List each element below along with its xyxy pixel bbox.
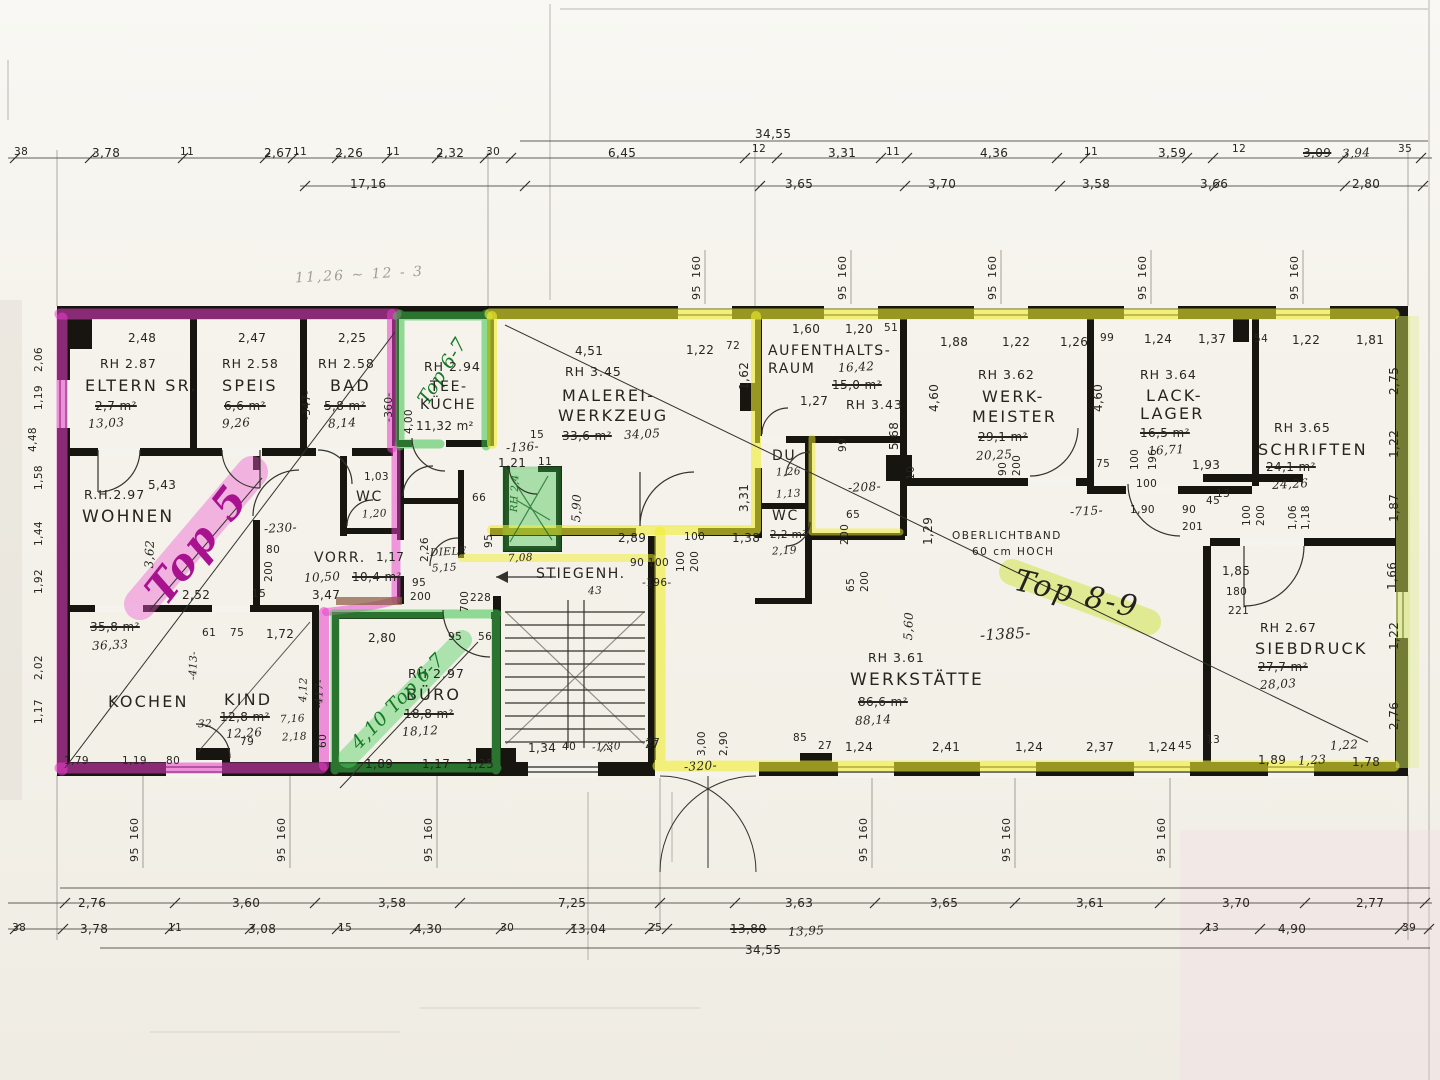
dim-label: 1,18	[1301, 505, 1312, 530]
dim-label: 1,17	[34, 699, 45, 724]
room-area-struck: 27,7 m²	[1258, 661, 1308, 673]
dim-label: 1,29	[922, 517, 934, 545]
dim-label: 1,26	[1060, 336, 1088, 348]
room-name: WC	[356, 490, 383, 504]
dim-label: 51	[884, 323, 898, 334]
window-dim-pair: 95160	[422, 818, 435, 863]
dim-label: 17,16	[350, 178, 386, 190]
dim-label: 11	[386, 147, 400, 158]
dim-label: 11	[886, 147, 900, 158]
dim-label: 4,60	[928, 384, 940, 412]
room-name: TEE-	[430, 380, 468, 394]
dim-label: 72	[726, 341, 740, 352]
dim-label: 2,02	[34, 655, 45, 680]
room-area-struck: 15,0 m²	[832, 379, 882, 391]
dim-label: 12	[1232, 144, 1246, 155]
dim-label: 3,65	[930, 897, 958, 909]
dim-label: 1,22	[686, 344, 714, 356]
room-area: 11,32 m²	[416, 420, 474, 432]
dim-label: 200	[860, 571, 871, 592]
dim-label: 90 100	[630, 558, 669, 569]
dim-label: 3,31	[738, 484, 750, 512]
dim-label: 2,41	[932, 741, 960, 753]
dim-label: 100	[676, 551, 687, 572]
dim-label: 75	[230, 628, 244, 639]
room-name: ELTERN SR.	[85, 378, 198, 394]
dim-label: 4,00	[404, 409, 415, 434]
dim-label: 38	[14, 147, 28, 158]
window-dim-pair: 95160	[690, 256, 703, 301]
dim-label: 39	[1402, 923, 1416, 934]
room-area-handwritten: 10,50	[304, 570, 341, 584]
room-area-struck: 10,4 m²	[352, 571, 402, 583]
dim-label: 1,19	[122, 756, 147, 767]
dim-label: 1,24	[845, 741, 873, 753]
window-dim-pair: 95160	[1288, 256, 1301, 301]
dim-label: 3,70	[1222, 897, 1250, 909]
dim-label: 1,06	[1288, 505, 1299, 530]
dim-label: 2,89	[618, 532, 646, 544]
dim-label: 11	[1084, 147, 1098, 158]
dim-label: 2,37	[1086, 741, 1114, 753]
dim-label: 1,79	[64, 756, 89, 767]
floor-plan-page: 34,55 38 3,78 11 2,67 11 2,26 11 2,32 30…	[0, 0, 1440, 1080]
dim-label: 5,68	[888, 422, 900, 450]
room-area-struck: 2,7 m²	[95, 400, 137, 412]
dim-label: 5,90	[570, 494, 583, 523]
dim-label: 1,58	[34, 465, 45, 490]
dim-label: 40	[562, 742, 576, 753]
dim-label: 99	[838, 438, 849, 452]
dim-label: 3,65	[785, 178, 813, 190]
dim-label-handwritten: 1,22	[1330, 738, 1359, 751]
room-height: RH 3.45	[565, 366, 622, 379]
room-name: WERK-	[982, 389, 1045, 405]
window-dim-pair: 95160	[1000, 818, 1013, 863]
window-dim-pair: 95160	[986, 256, 999, 301]
dim-label: 1,21	[498, 457, 526, 469]
room-area-struck: 24,1 m²	[1266, 461, 1316, 473]
room-height: RH 2.87	[100, 358, 157, 371]
dim-label-handwritten: -1385-	[980, 626, 1031, 644]
room-area-handwritten: 13,03	[88, 416, 125, 430]
dim-label: 30	[486, 147, 500, 158]
room-height: RH 2.58	[222, 358, 279, 371]
dim-label: 38	[12, 923, 26, 934]
scan-smudge	[1180, 830, 1440, 1080]
dim-label: 2,80	[368, 632, 396, 644]
dim-label: 3,59	[1158, 147, 1186, 159]
dim-label: 1,24	[1148, 741, 1176, 753]
room-name-handwritten: DIELE	[430, 546, 467, 558]
dim-label: 27	[646, 738, 660, 749]
dim-label: 1,22	[1292, 334, 1320, 346]
dim-label: 1,34	[528, 742, 556, 754]
dim-label-struck: 13,80	[730, 923, 766, 935]
dim-label: 6,45	[608, 147, 636, 159]
dim-label: 3,08	[248, 923, 276, 935]
room-height: R.H.2.97	[84, 489, 145, 502]
room-area-handwritten: 28,03	[1260, 677, 1297, 691]
room-area-handwritten: 1,26	[776, 466, 801, 478]
dim-label: 75	[1096, 459, 1110, 470]
dim-label: 2,90	[719, 731, 730, 756]
dim-label: 7,25	[558, 897, 586, 909]
dim-label: 3,00	[697, 731, 708, 756]
dim-label: 1,17	[376, 551, 404, 563]
dim-label: 1,24	[1015, 741, 1043, 753]
room-area-handwritten: 36,33	[92, 638, 129, 652]
dim-label: 11	[293, 147, 307, 158]
window-dim-pair: 95160	[836, 256, 849, 301]
room-area-struck: 29,1 m²	[978, 431, 1028, 443]
dim-label: 25	[648, 923, 662, 934]
room-area-handwritten: 20,25	[976, 448, 1013, 462]
dim-label: 200	[1012, 455, 1023, 476]
dim-label: 13	[1216, 489, 1230, 500]
dim-label: 1,03	[364, 472, 389, 483]
dim-overall-top: 34,55	[755, 128, 791, 140]
dim-label: 3,58	[378, 897, 406, 909]
dim-label: 1,38	[732, 532, 760, 544]
dim-label: 100	[1136, 479, 1157, 490]
dim-label: 1,20	[845, 323, 873, 335]
dim-label: -417-	[314, 679, 326, 708]
room-name: RAUM	[768, 362, 815, 376]
dim-label: 2,76	[1388, 702, 1400, 730]
dim-label: 100	[1130, 449, 1141, 470]
dim-label: 1,22	[1388, 430, 1400, 458]
dim-label-handwritten: 2,18	[282, 731, 307, 743]
dim-label: 3,63	[785, 897, 813, 909]
closet-room-height: RH 2,4	[510, 474, 521, 512]
dim-label: 4,36	[980, 147, 1008, 159]
dim-label-handwritten: 1,20	[362, 508, 387, 520]
room-name: MALEREI-	[562, 388, 655, 404]
room-area-handwritten: 16,42	[838, 360, 875, 374]
room-name: KÜCHE	[420, 398, 476, 412]
dim-label: 2,32	[436, 147, 464, 159]
room-height: RH 3.65	[1274, 422, 1331, 435]
dim-label-handwritten: -715-	[1070, 504, 1104, 518]
annotation-oberlichtband: 60 cm HOCH	[972, 547, 1054, 558]
room-area-handwritten: 34,05	[624, 427, 661, 441]
dim-label: 201	[1182, 522, 1203, 533]
dim-label: 30	[500, 923, 514, 934]
dim-label: 1,81	[1356, 334, 1384, 346]
dim-label: 3,66	[1200, 178, 1228, 190]
dim-label: 35	[1398, 144, 1412, 155]
dim-label: 5,43	[148, 479, 176, 491]
room-name: WOHNEN	[82, 509, 174, 526]
dim-label: 65	[846, 578, 857, 592]
room-height: RH 3.64	[1140, 369, 1197, 382]
dim-label: 100	[1242, 505, 1253, 526]
dim-label: 200	[840, 524, 851, 545]
dim-label: 1,22	[1002, 336, 1030, 348]
room-area-struck: 86,6 m²	[858, 696, 908, 708]
dim-label: 1,66	[1386, 562, 1398, 590]
room-name: AUFENTHALTS-	[768, 344, 891, 358]
room-area-handwritten: 8,14	[328, 416, 357, 429]
room-height: RH 3.62	[978, 369, 1035, 382]
room-name: STIEGENH.	[536, 567, 626, 581]
dim-label: 13,04	[570, 923, 606, 935]
dim-label: 100	[684, 532, 705, 543]
dim-label: 11	[538, 457, 552, 468]
dim-label: 3,60	[232, 897, 260, 909]
room-area-struck: 16,5 m²	[1140, 427, 1190, 439]
dim-label: -413-	[188, 651, 200, 680]
dim-label: 2,80	[1352, 178, 1380, 190]
window-dim-pair: 95160	[128, 818, 141, 863]
dim-label: 60	[318, 734, 329, 748]
room-area-handwritten: 18,12	[402, 724, 439, 738]
dim-label: 80	[266, 545, 280, 556]
dim-label: 196	[1148, 449, 1159, 470]
window-dim-pair: 95160	[857, 818, 870, 863]
dim-label: 3,70	[928, 178, 956, 190]
level-label: -1,30	[592, 741, 621, 753]
room-area-struck: 12,8 m²	[220, 711, 270, 723]
dim-label: 1,72	[266, 628, 294, 640]
dim-label: -196-	[642, 578, 672, 589]
room-height: RH 3.61	[868, 652, 925, 665]
dim-label: 2,75	[1388, 367, 1400, 395]
dim-label: 1,25	[466, 758, 494, 770]
dim-label: 56	[478, 632, 492, 643]
room-name: SCHRIFTEN	[1258, 442, 1368, 458]
dim-label: 11	[168, 923, 182, 934]
dim-label: 3,61	[1076, 897, 1104, 909]
dim-label: 12	[752, 144, 766, 155]
room-name: SPEIS	[222, 378, 278, 394]
room-name: DU	[772, 449, 796, 463]
dim-label: 4,90	[1278, 923, 1306, 935]
dim-label-handwritten: 43	[588, 586, 603, 597]
room-area-struck: 33,6 m²	[562, 430, 612, 442]
dim-label: 2,48	[128, 332, 156, 344]
dim-label: 85	[793, 733, 807, 744]
room-area-struck: 2,2 m²	[770, 530, 807, 541]
dim-label: 3,58	[1082, 178, 1110, 190]
dim-label: 1,89	[1258, 754, 1286, 766]
dim-label: 1,37	[1198, 333, 1226, 345]
dim-label: 4,12	[298, 677, 309, 702]
dim-label: 4,51	[575, 345, 603, 357]
dim-label: 54	[1254, 334, 1268, 345]
dim-label-struck: 3,09	[1303, 147, 1331, 159]
dim-label-handwritten: 5,15	[432, 562, 457, 574]
dim-label: 11	[180, 147, 194, 158]
dim-label: 13	[1205, 923, 1219, 934]
room-area-handwritten: 9,26	[222, 416, 251, 429]
dim-label: 15	[338, 923, 352, 934]
dim-label-handwritten: 13,95	[788, 924, 825, 938]
room-area-handwritten: 24,26	[1272, 477, 1309, 491]
dim-label: 1,60	[792, 323, 820, 335]
dim-label-handwritten: 3,94	[1342, 146, 1371, 159]
dim-label: 95	[448, 632, 462, 643]
dim-label: 2,67	[264, 147, 292, 159]
dim-label: 3,47	[312, 589, 340, 601]
room-height: RH 2.94	[424, 361, 481, 374]
dim-label: 66	[472, 493, 486, 504]
dim-label: 1,90	[1130, 505, 1155, 516]
dim-label: 1,89	[365, 758, 393, 770]
room-area-handwritten: 88,14	[855, 713, 892, 727]
room-area-struck: 6,6 m²	[224, 400, 266, 412]
dim-label: 10	[906, 466, 917, 480]
dim-label: 2,06	[34, 347, 45, 372]
dim-label: 27	[818, 741, 832, 752]
dim-label: 228	[470, 593, 491, 604]
dim-label: 221	[1228, 606, 1249, 617]
window-dim-pair: 95160	[275, 818, 288, 863]
dim-label: 99	[1100, 333, 1114, 344]
dim-label: 1,88	[940, 336, 968, 348]
dim-label: 90	[1182, 505, 1196, 516]
dim-label: 3,78	[80, 923, 108, 935]
dim-label: 180	[1226, 587, 1247, 598]
dim-label-handwritten: 1,23	[1298, 753, 1327, 766]
dim-label: 65	[846, 510, 860, 521]
dim-label: 1,62	[738, 362, 750, 390]
dim-label-handwritten: -320-	[684, 759, 718, 773]
dim-label-handwritten: 7,16	[280, 713, 305, 725]
dim-label: 90	[998, 462, 1009, 476]
room-area-struck: 5,8 m²	[324, 400, 366, 412]
room-area-struck: 18,8 m²	[404, 708, 454, 720]
dim-label: 13	[1206, 735, 1220, 746]
room-name: WERKZEUG	[558, 408, 668, 424]
dim-label: 95	[484, 534, 495, 548]
room-name: MEISTER	[972, 409, 1057, 425]
room-name: KOCHEN	[108, 694, 189, 710]
window-dim-pair: 95160	[1136, 256, 1149, 301]
dim-label: 1,24	[1144, 333, 1172, 345]
dim-label: 1,85	[1222, 565, 1250, 577]
dim-label: 200	[1256, 505, 1267, 526]
scan-smudge	[0, 300, 22, 800]
room-name: BAD	[330, 378, 371, 394]
window-dim-pair: 95160	[1155, 818, 1168, 863]
dim-label: 1,44	[34, 521, 45, 546]
dim-label: 1,93	[1192, 459, 1220, 471]
dim-label: 1,78	[1352, 756, 1380, 768]
dim-label: 4,60	[1092, 384, 1104, 412]
dim-label: 1,19	[34, 385, 45, 410]
dim-label: 1,27	[800, 395, 828, 407]
room-area-handwritten: 2,19	[772, 545, 797, 557]
dim-label-handwritten: 1,13	[776, 488, 801, 500]
dim-label: 45	[1178, 741, 1192, 752]
room-name: SIEBDRUCK	[1255, 641, 1368, 657]
dim-label: 3,31	[828, 147, 856, 159]
dim-label: 200	[690, 551, 701, 572]
dim-label-handwritten: 7,08	[508, 552, 533, 564]
dim-label: 3,78	[92, 147, 120, 159]
dim-label: 95	[412, 578, 426, 589]
dim-label-handwritten: -230-	[264, 521, 298, 535]
room-height: RH 2.67	[1260, 622, 1317, 635]
dim-label-handwritten: 32	[198, 719, 213, 730]
room-name: KIND	[224, 692, 272, 708]
dim-label: 1,92	[34, 569, 45, 594]
dim-label: 5,60	[902, 612, 915, 641]
dim-label: 79	[240, 737, 254, 748]
dim-label: 2,25	[338, 332, 366, 344]
dim-label: 4,48	[28, 427, 39, 452]
dim-label: 2,76	[78, 897, 106, 909]
room-name: LAGER	[1140, 406, 1205, 422]
dim-label: 200	[264, 561, 275, 582]
room-height: RH 3.43	[846, 399, 903, 412]
dim-label: 200	[410, 592, 431, 603]
room-name: LACK-	[1146, 388, 1203, 404]
room-name: WC	[772, 509, 799, 523]
dim-label-handwritten: -136-	[506, 440, 540, 454]
dim-label: 15	[252, 589, 266, 600]
dim-label: 1,17	[422, 758, 450, 770]
room-name: WERKSTÄTTE	[850, 672, 984, 689]
dim-label: 2,47	[238, 332, 266, 344]
dim-label: 1,87	[1388, 494, 1400, 522]
room-height: RH 2.58	[318, 358, 375, 371]
annotation-oberlichtband: OBERLICHTBAND	[952, 531, 1062, 542]
room-name: VORR.	[314, 551, 366, 565]
room-area-struck: 35,8 m²	[90, 621, 140, 633]
dim-label: -347-	[302, 390, 313, 420]
dim-label: 61	[202, 628, 216, 639]
dim-label-handwritten: -208-	[848, 480, 882, 494]
dim-label: 4,30	[414, 923, 442, 935]
dim-label: 700	[460, 591, 471, 612]
dim-overall-bottom: 34,55	[745, 944, 781, 956]
dim-label: 2,77	[1356, 897, 1384, 909]
dim-label: 2,26	[335, 147, 363, 159]
dim-label: 80	[166, 756, 180, 767]
dim-label: -360-	[384, 392, 395, 422]
dim-label: 1,22	[1388, 622, 1400, 650]
